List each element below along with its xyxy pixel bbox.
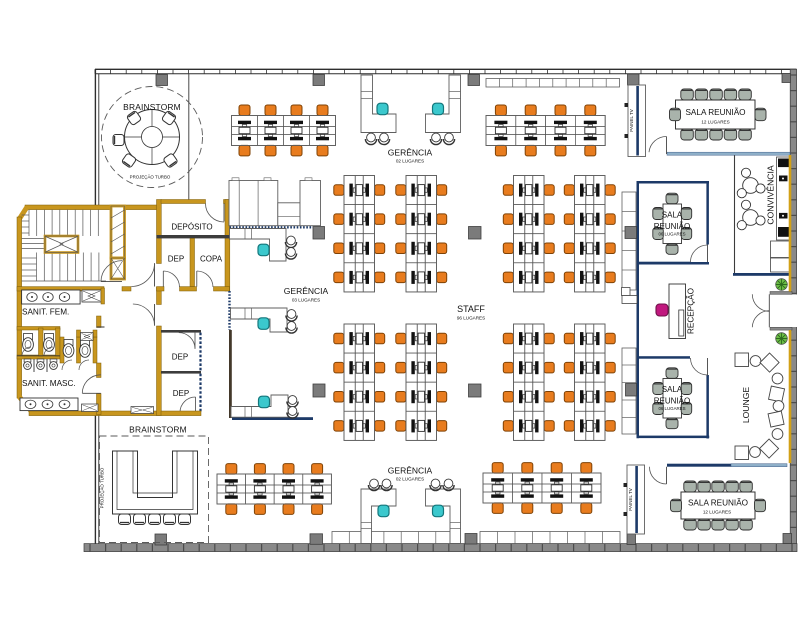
svg-text:PAINEL TV: PAINEL TV xyxy=(629,109,634,131)
svg-text:DEP: DEP xyxy=(168,255,184,264)
svg-text:DEPÓSITO: DEPÓSITO xyxy=(171,223,212,232)
svg-text:COPA: COPA xyxy=(200,255,223,264)
svg-text:REUNIÃO: REUNIÃO xyxy=(654,397,690,406)
svg-text:02 LUGARES: 02 LUGARES xyxy=(396,159,424,164)
svg-text:LOUNGE: LOUNGE xyxy=(741,387,751,424)
svg-text:BRAINSTORM: BRAINSTORM xyxy=(123,102,181,112)
svg-text:02 LUGARES: 02 LUGARES xyxy=(396,477,424,482)
svg-text:BRAINSTORM: BRAINSTORM xyxy=(129,425,187,435)
svg-text:SALA: SALA xyxy=(662,385,683,394)
svg-text:DEP: DEP xyxy=(172,353,188,362)
svg-text:STAFF: STAFF xyxy=(457,304,485,314)
svg-text:SALA REUNIÃO: SALA REUNIÃO xyxy=(688,498,748,508)
svg-text:PAINEL TV: PAINEL TV xyxy=(628,488,633,510)
svg-text:SALA REUNIÃO: SALA REUNIÃO xyxy=(685,107,745,117)
svg-text:PROJEÇÃO TURBO: PROJEÇÃO TURBO xyxy=(130,175,171,180)
svg-text:GERÊNCIA: GERÊNCIA xyxy=(388,466,433,476)
svg-text:96 LUGARES: 96 LUGARES xyxy=(457,316,485,321)
svg-text:DEP: DEP xyxy=(173,389,189,398)
svg-text:SALA: SALA xyxy=(662,211,683,220)
svg-text:CONVIVÊNCIA: CONVIVÊNCIA xyxy=(766,165,776,224)
svg-text:SANIT. FEM.: SANIT. FEM. xyxy=(22,308,69,317)
svg-text:06 LUGARES: 06 LUGARES xyxy=(658,406,685,411)
svg-text:SANIT. MASC.: SANIT. MASC. xyxy=(22,379,76,388)
svg-text:03 LUGARES: 03 LUGARES xyxy=(292,298,320,303)
svg-text:GERÊNCIA: GERÊNCIA xyxy=(388,148,433,158)
svg-text:GERÊNCIA: GERÊNCIA xyxy=(284,286,329,296)
svg-text:06 LUGARES: 06 LUGARES xyxy=(658,232,685,237)
svg-text:RECEPÇÃO: RECEPÇÃO xyxy=(686,288,696,334)
svg-text:REUNIÃO: REUNIÃO xyxy=(654,222,690,231)
svg-text:12 LUGARES: 12 LUGARES xyxy=(701,120,729,125)
svg-text:12 LUGARES: 12 LUGARES xyxy=(703,510,731,515)
svg-text:PROJEÇÃO TURBO: PROJEÇÃO TURBO xyxy=(100,467,105,508)
